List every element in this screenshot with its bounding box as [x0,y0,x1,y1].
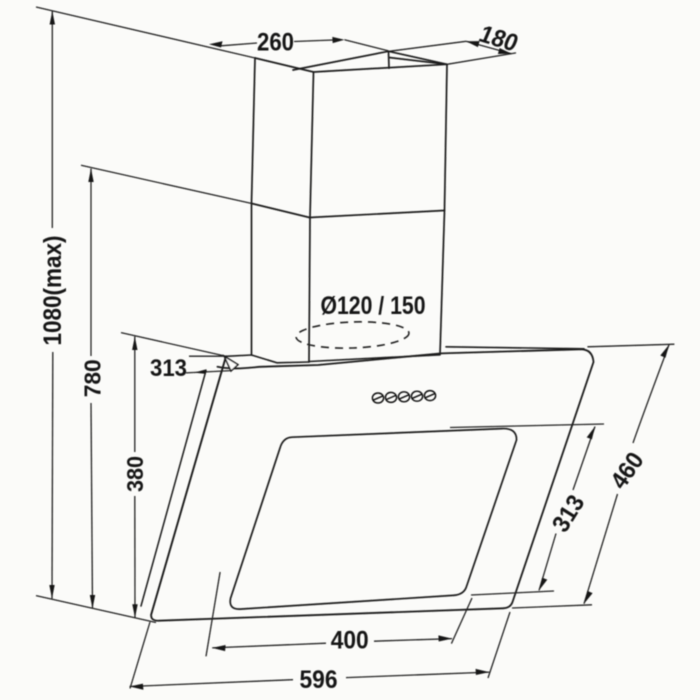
svg-text:460: 460 [606,448,650,495]
svg-text:Ø120 / 150: Ø120 / 150 [321,292,426,320]
svg-text:380: 380 [122,456,148,492]
svg-text:400: 400 [331,627,369,655]
svg-text:180: 180 [475,21,522,57]
svg-text:260: 260 [257,29,294,57]
svg-text:596: 596 [300,666,338,694]
svg-text:313: 313 [547,490,590,537]
svg-text:780: 780 [79,359,105,397]
svg-text:313: 313 [150,355,187,382]
svg-text:1080(max): 1080(max) [39,236,67,346]
